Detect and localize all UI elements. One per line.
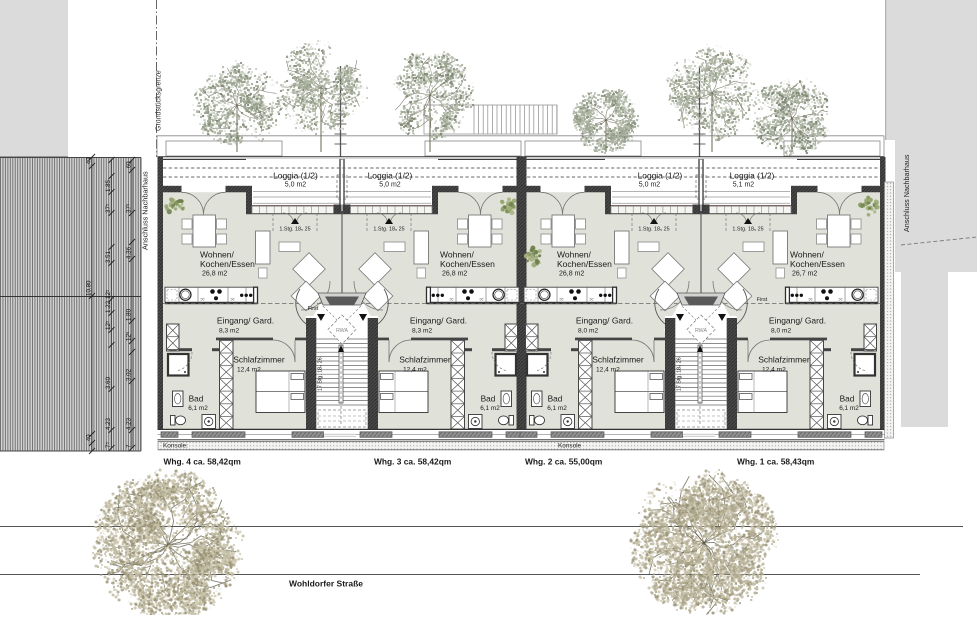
svg-text:ɔc: ɔc (808, 297, 812, 302)
svg-text:5,0 m2: 5,0 m2 (639, 181, 661, 188)
svg-text:4.23: 4.23 (105, 417, 112, 430)
svg-text:12,4 m2: 12,4 m2 (762, 367, 786, 374)
svg-text:.40: .40 (86, 157, 93, 166)
svg-text:Wohnen/: Wohnen/ (440, 250, 475, 260)
svg-text:Wohnen/: Wohnen/ (790, 250, 825, 260)
svg-text:Kochen/Essen: Kochen/Essen (440, 259, 495, 269)
svg-text:Schlafzimmer: Schlafzimmer (233, 355, 285, 365)
svg-text:RWA: RWA (695, 328, 708, 334)
svg-text:Whg. 3 ca. 58,42qm: Whg. 3 ca. 58,42qm (374, 457, 451, 467)
svg-text:6,1 m2: 6,1 m2 (480, 405, 500, 412)
svg-text:1.22: 1.22 (105, 300, 112, 313)
svg-text:1.Stg. 18₅ 25: 1.Stg. 18₅ 25 (732, 227, 763, 233)
svg-text:7: 7 (126, 444, 133, 448)
svg-text:1.Stg. 18₅ 25: 1.Stg. 18₅ 25 (373, 227, 404, 233)
svg-text:Loggia (1/2): Loggia (1/2) (638, 171, 683, 181)
svg-text:ɔc: ɔc (200, 297, 204, 302)
svg-text:8,3 m2: 8,3 m2 (219, 328, 239, 335)
svg-text:Eingang/ Gard.: Eingang/ Gard. (576, 316, 633, 326)
svg-text:26,8 m2: 26,8 m2 (202, 271, 227, 278)
svg-text:17 Stg. 18₅ 26: 17 Stg. 18₅ 26 (318, 357, 324, 391)
svg-text:Konsole: Konsole (558, 443, 582, 450)
svg-text:ɔc: ɔc (838, 297, 842, 302)
svg-text:1.80: 1.80 (126, 308, 133, 321)
svg-text:6,1 m2: 6,1 m2 (547, 405, 567, 412)
svg-text:17 Stg. 18₅ 26: 17 Stg. 18₅ 26 (677, 357, 683, 391)
svg-text:ɔc: ɔc (559, 297, 563, 302)
svg-text:Wohldorfer Straße: Wohldorfer Straße (289, 579, 363, 589)
svg-text:Bad: Bad (189, 394, 204, 404)
svg-text:37⁵: 37⁵ (105, 203, 112, 213)
svg-text:26,8 m2: 26,8 m2 (442, 271, 467, 278)
svg-text:37⁵: 37⁵ (126, 203, 133, 213)
svg-text:Schlafzimmer: Schlafzimmer (399, 355, 451, 365)
svg-text:Whg. 4 ca. 58,42qm: Whg. 4 ca. 58,42qm (164, 457, 241, 467)
svg-text:ɔc: ɔc (479, 297, 483, 302)
svg-text:Eingang/ Gard.: Eingang/ Gard. (410, 316, 467, 326)
svg-text:Wohnen/: Wohnen/ (200, 250, 235, 260)
svg-text:First: First (308, 306, 319, 312)
svg-text:Wohnen/: Wohnen/ (557, 250, 592, 260)
svg-text:5,1 m2: 5,1 m2 (733, 181, 755, 188)
svg-text:3.60: 3.60 (105, 376, 112, 389)
svg-text:12⁵: 12⁵ (126, 331, 133, 341)
svg-text:Grundstücksgrenze: Grundstücksgrenze (156, 70, 163, 131)
svg-text:Loggia (1/2): Loggia (1/2) (730, 171, 775, 181)
svg-text:6,1 m2: 6,1 m2 (839, 405, 859, 412)
svg-text:Anschluss Nachbarhaus: Anschluss Nachbarhaus (141, 171, 150, 250)
svg-text:26,7 m2: 26,7 m2 (792, 271, 817, 278)
svg-text:5,0 m2: 5,0 m2 (379, 181, 401, 188)
svg-text:Bad: Bad (481, 394, 496, 404)
svg-text:Bad: Bad (548, 394, 563, 404)
svg-text:12⁵: 12⁵ (105, 320, 112, 330)
svg-text:Konsole:: Konsole: (163, 443, 188, 450)
svg-text:7⁵: 7⁵ (105, 442, 112, 448)
svg-text:Kochen/Essen: Kochen/Essen (557, 259, 612, 269)
svg-text:12,4 m2: 12,4 m2 (596, 367, 620, 374)
svg-text:First: First (757, 297, 768, 303)
svg-text:Eingang/ Gard.: Eingang/ Gard. (217, 316, 274, 326)
svg-text:6,1 m2: 6,1 m2 (188, 405, 208, 412)
svg-text:Kochen/Essen: Kochen/Essen (790, 259, 845, 269)
svg-text:12,4 m2: 12,4 m2 (403, 367, 427, 374)
svg-text:ɔc: ɔc (449, 297, 453, 302)
svg-text:1.Stg. 18₅ 25: 1.Stg. 18₅ 25 (638, 227, 669, 233)
svg-text:RWA: RWA (336, 328, 349, 334)
svg-text:ɔc: ɔc (589, 297, 593, 302)
svg-text:12,4 m2: 12,4 m2 (237, 367, 261, 374)
svg-text:Loggia (1/2): Loggia (1/2) (273, 171, 318, 181)
svg-text:Eingang/ Gard.: Eingang/ Gard. (769, 316, 826, 326)
svg-text:4.36: 4.36 (126, 246, 133, 259)
svg-text:1.Stg. 18₅ 25: 1.Stg. 18₅ 25 (279, 227, 310, 233)
svg-text:Schlafzimmer: Schlafzimmer (592, 355, 644, 365)
svg-text:8,0 m2: 8,0 m2 (578, 328, 598, 335)
svg-text:8,0 m2: 8,0 m2 (771, 328, 791, 335)
svg-text:.40: .40 (86, 434, 93, 443)
svg-text:12⁵: 12⁵ (105, 289, 112, 299)
svg-text:4.23: 4.23 (126, 417, 133, 430)
svg-text:ɔc: ɔc (230, 297, 234, 302)
svg-text:8,3 m2: 8,3 m2 (412, 328, 432, 335)
svg-text:Whg. 1 ca. 58,43qm: Whg. 1 ca. 58,43qm (737, 457, 814, 467)
svg-text:Anschluss Nachbarhaus: Anschluss Nachbarhaus (902, 154, 911, 232)
svg-text:Bad: Bad (840, 394, 855, 404)
svg-text:3.51: 3.51 (105, 250, 112, 263)
svg-text:10.80: 10.80 (86, 280, 93, 296)
svg-text:Loggia (1/2): Loggia (1/2) (368, 171, 413, 181)
svg-text:5,0 m2: 5,0 m2 (285, 181, 307, 188)
svg-text:3.02: 3.02 (126, 368, 133, 381)
svg-text:1.85: 1.85 (105, 179, 112, 192)
svg-text:26,8 m2: 26,8 m2 (559, 271, 584, 278)
svg-text:Schlafzimmer: Schlafzimmer (758, 355, 810, 365)
svg-text:Whg. 2 ca. 55,00qm: Whg. 2 ca. 55,00qm (525, 457, 602, 467)
svg-text:Kochen/Essen: Kochen/Essen (200, 259, 255, 269)
svg-text:.60: .60 (126, 161, 133, 170)
